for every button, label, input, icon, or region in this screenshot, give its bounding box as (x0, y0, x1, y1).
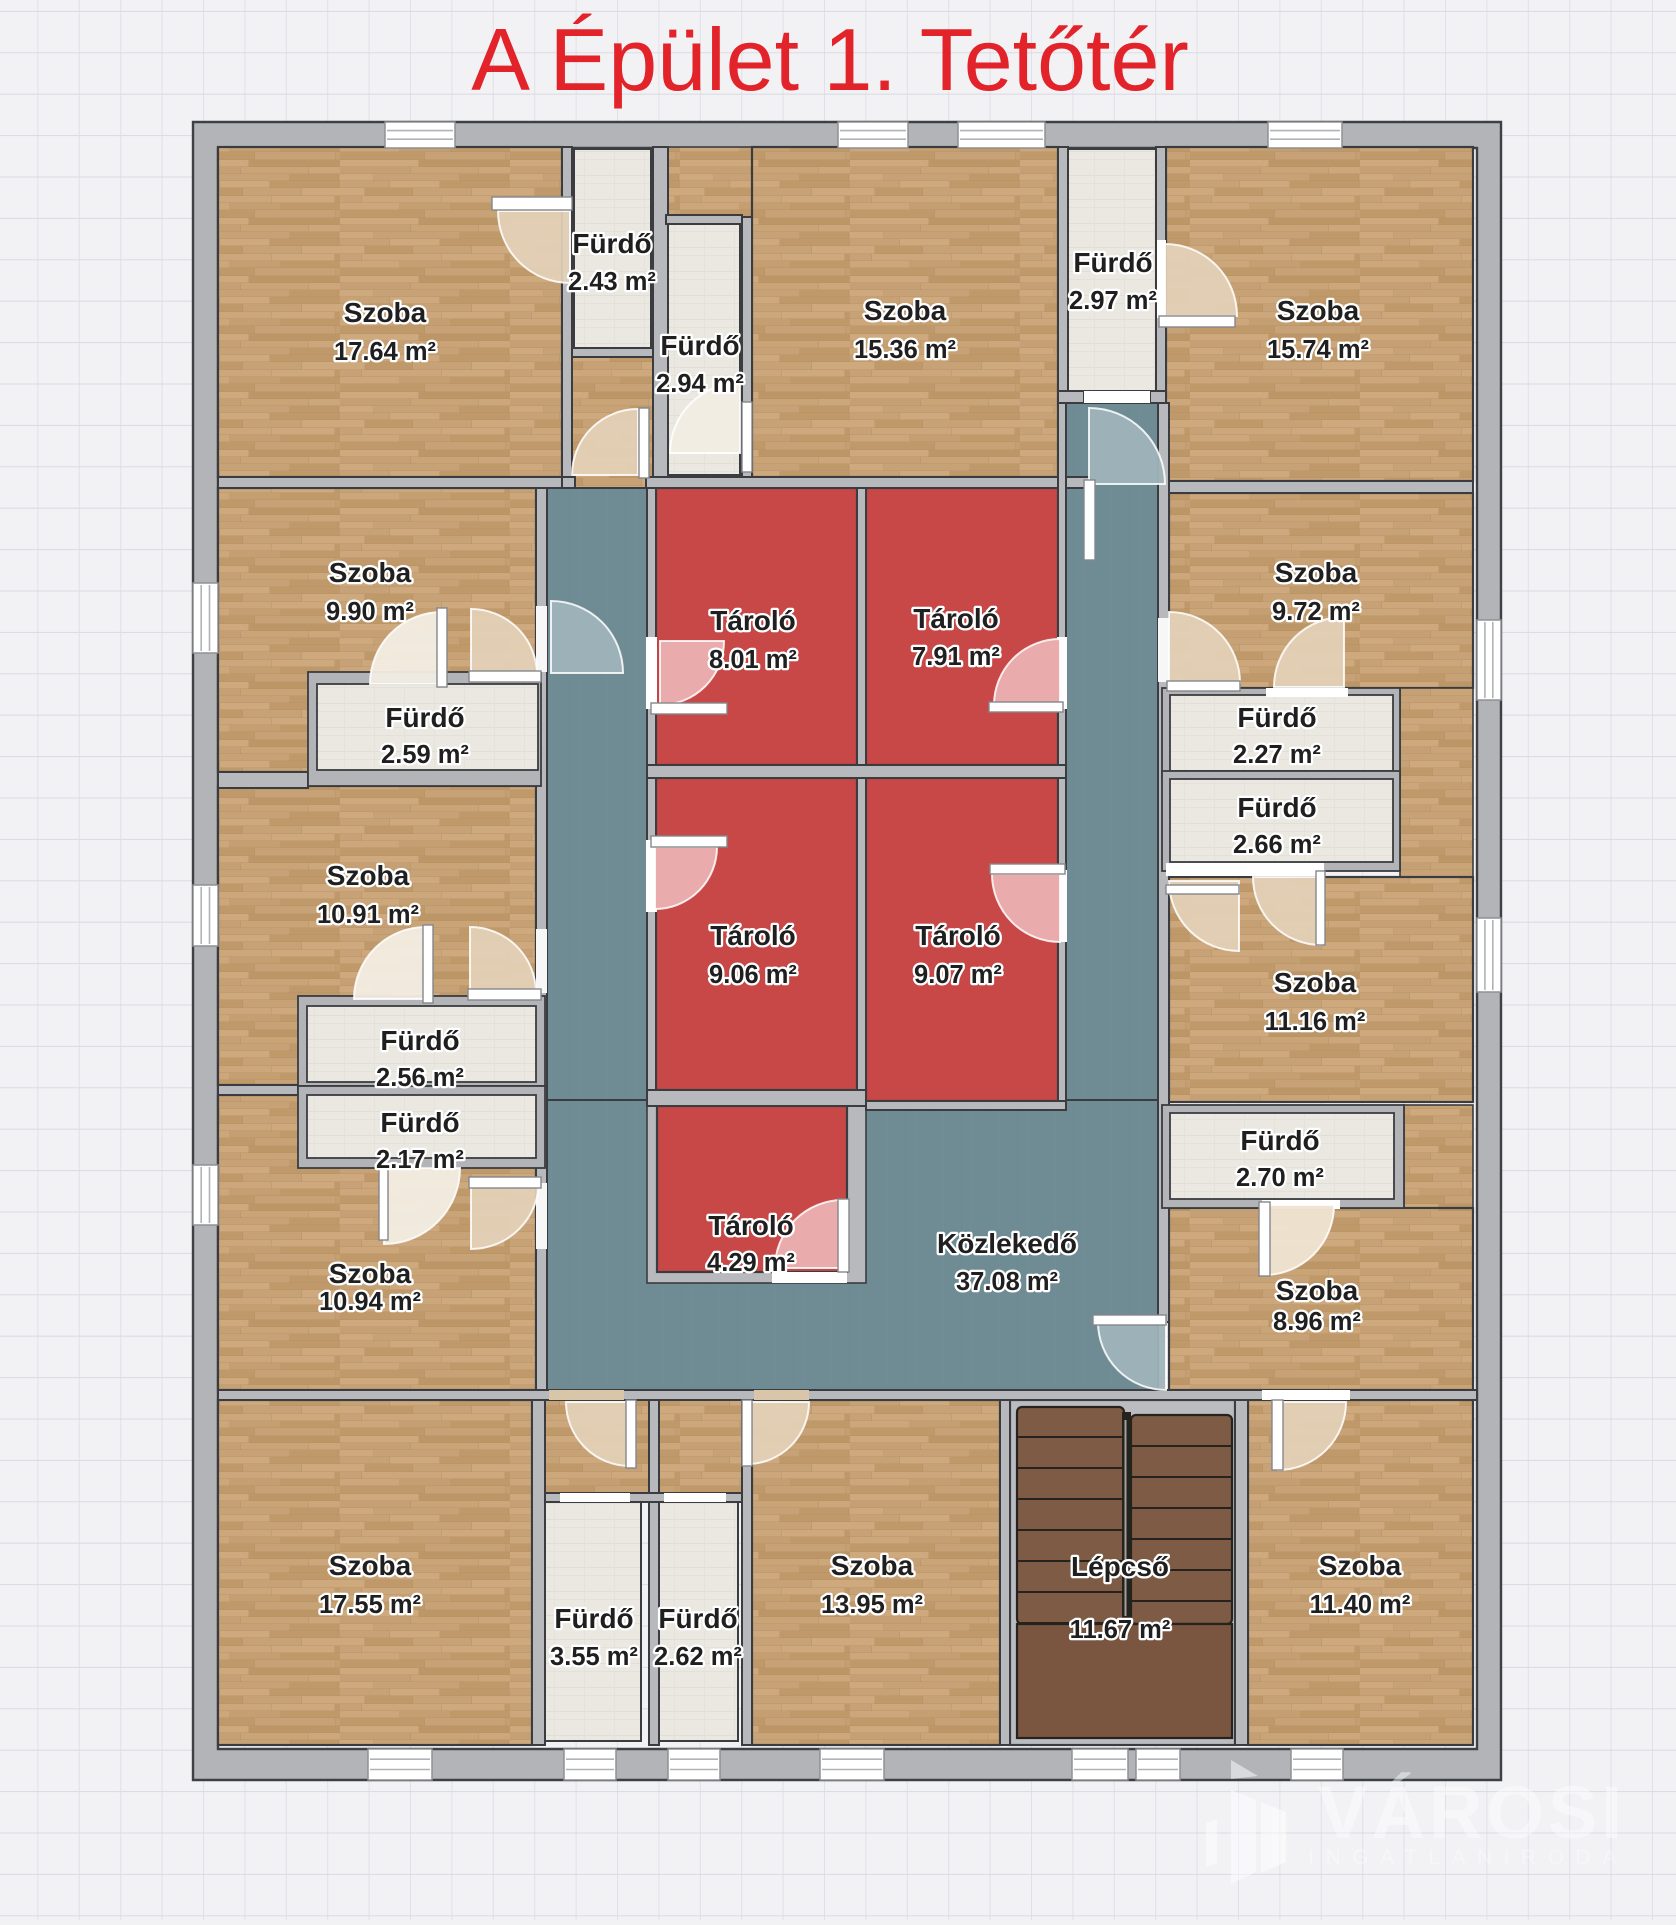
svg-text:Tároló: Tároló (708, 1210, 794, 1241)
svg-text:2.62 m²: 2.62 m² (654, 1643, 742, 1671)
svg-text:9.72 m²: 9.72 m² (1272, 598, 1360, 626)
svg-text:VÁROSI: VÁROSI (1318, 1771, 1626, 1854)
svg-text:Tároló: Tároló (710, 920, 796, 951)
svg-text:2.43 m²: 2.43 m² (568, 268, 656, 296)
svg-text:9.06 m²: 9.06 m² (709, 961, 797, 989)
svg-text:8.96 m²: 8.96 m² (1273, 1308, 1361, 1336)
svg-text:17.55 m²: 17.55 m² (319, 1591, 421, 1619)
svg-text:2.17 m²: 2.17 m² (376, 1146, 464, 1174)
svg-text:Szoba: Szoba (831, 1550, 914, 1581)
svg-text:Fürdő: Fürdő (572, 228, 651, 259)
svg-text:13.95 m²: 13.95 m² (821, 1591, 923, 1619)
svg-text:37.08 m²: 37.08 m² (956, 1268, 1058, 1296)
svg-text:2.70 m²: 2.70 m² (1236, 1164, 1324, 1192)
svg-text:Tároló: Tároló (710, 605, 796, 636)
svg-text:Szoba: Szoba (329, 557, 412, 588)
svg-text:Szoba: Szoba (1277, 295, 1360, 326)
svg-text:4.29 m²: 4.29 m² (707, 1249, 795, 1277)
svg-text:Fürdő: Fürdő (380, 1025, 459, 1056)
svg-text:Szoba: Szoba (1275, 557, 1358, 588)
svg-text:Fürdő: Fürdő (1237, 702, 1316, 733)
svg-text:11.40 m²: 11.40 m² (1310, 1591, 1411, 1619)
svg-text:Fürdő: Fürdő (380, 1107, 459, 1138)
svg-text:Fürdő: Fürdő (658, 1603, 737, 1634)
svg-text:10.94 m²: 10.94 m² (319, 1288, 421, 1316)
svg-text:11.67 m²: 11.67 m² (1070, 1616, 1171, 1644)
svg-text:Tároló: Tároló (915, 920, 1001, 951)
svg-text:2.27 m²: 2.27 m² (1233, 741, 1321, 769)
svg-text:Szoba: Szoba (1276, 1275, 1359, 1306)
svg-text:A Épület 1. Tetőtér: A Épület 1. Tetőtér (471, 10, 1189, 109)
svg-text:3.55 m²: 3.55 m² (550, 1643, 638, 1671)
svg-text:2.59 m²: 2.59 m² (381, 741, 469, 769)
svg-text:Fürdő: Fürdő (554, 1603, 633, 1634)
svg-text:8.01 m²: 8.01 m² (709, 646, 797, 674)
svg-text:Fürdő: Fürdő (1237, 792, 1316, 823)
svg-text:15.74 m²: 15.74 m² (1267, 336, 1369, 364)
svg-text:Szoba: Szoba (329, 1258, 412, 1289)
svg-text:Szoba: Szoba (327, 860, 410, 891)
svg-text:17.64 m²: 17.64 m² (334, 338, 436, 366)
svg-text:11.16 m²: 11.16 m² (1265, 1008, 1366, 1036)
svg-text:Közlekedő: Közlekedő (937, 1228, 1077, 1259)
svg-text:INGATLANIRODA: INGATLANIRODA (1308, 1846, 1627, 1869)
svg-text:Szoba: Szoba (344, 297, 427, 328)
svg-text:Szoba: Szoba (329, 1550, 412, 1581)
svg-text:15.36 m²: 15.36 m² (854, 336, 956, 364)
svg-text:2.97 m²: 2.97 m² (1069, 287, 1157, 315)
svg-text:2.66 m²: 2.66 m² (1233, 831, 1321, 859)
svg-text:9.90 m²: 9.90 m² (326, 598, 414, 626)
svg-text:Tároló: Tároló (913, 603, 999, 634)
svg-text:Fürdő: Fürdő (1240, 1125, 1319, 1156)
svg-text:Fürdő: Fürdő (1073, 247, 1152, 278)
svg-text:10.91 m²: 10.91 m² (317, 901, 419, 929)
svg-text:Szoba: Szoba (864, 295, 947, 326)
svg-text:Lépcső: Lépcső (1071, 1551, 1169, 1582)
svg-text:7.91 m²: 7.91 m² (912, 643, 1000, 671)
svg-text:Fürdő: Fürdő (660, 330, 739, 361)
svg-text:Szoba: Szoba (1319, 1550, 1402, 1581)
svg-text:2.56 m²: 2.56 m² (376, 1064, 464, 1092)
svg-text:2.94 m²: 2.94 m² (656, 370, 744, 398)
svg-text:9.07 m²: 9.07 m² (914, 961, 1002, 989)
svg-text:Fürdő: Fürdő (385, 702, 464, 733)
svg-text:Szoba: Szoba (1274, 967, 1357, 998)
